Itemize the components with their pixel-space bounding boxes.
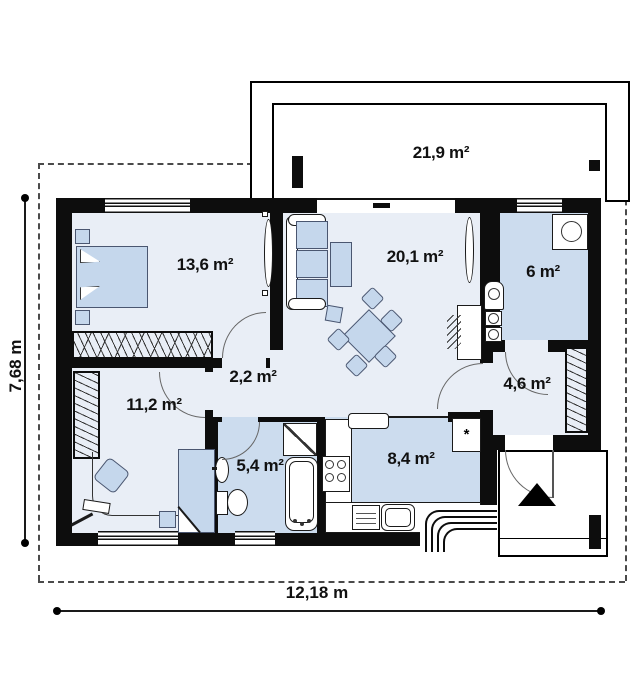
bathroom-window [235, 531, 275, 546]
stool-icon [325, 305, 344, 324]
entrance-hall-area-label: 4,6 m² [503, 374, 550, 394]
sink-tap-icon [212, 467, 217, 470]
door-hinge-icon [262, 211, 268, 217]
burner-icon [337, 460, 346, 469]
burner-icon [325, 473, 334, 482]
burner-icon [337, 473, 346, 482]
hallway-area-label: 2,2 m² [229, 367, 276, 387]
terrace-door-leaf-icon [465, 217, 474, 283]
meter-dial-icon [488, 329, 499, 340]
dimension-endpoint [53, 607, 61, 615]
entrance-arrow-icon [518, 483, 556, 506]
width-dimension-line [57, 610, 601, 612]
terrace-door-sill [373, 203, 390, 208]
washing-machine-drum-icon [561, 221, 582, 242]
bedroom-2-wardrobe-icon [73, 371, 100, 459]
step-line-icon [443, 528, 497, 552]
dimension-endpoint [21, 539, 29, 547]
kitchen-sink-inner [385, 508, 411, 527]
bedroom-2-window [98, 531, 178, 546]
shower-icon [283, 423, 317, 456]
radiator-icon [447, 315, 461, 349]
burner-icon [325, 460, 334, 469]
bedroom-2-door-opening [205, 372, 213, 410]
door-hinge-icon [262, 290, 268, 296]
boiler-dial-icon [488, 288, 500, 300]
utility-room-area-label: 6 m² [526, 262, 560, 282]
bathtub-inner [289, 461, 314, 523]
tv-bench-icon [330, 242, 352, 287]
bedroom-area-label: 13,6 m² [177, 255, 234, 275]
sofa-cushion-icon [296, 250, 328, 278]
bathroom-area-label: 5,4 m² [236, 456, 283, 476]
sofa-armrest-icon [288, 298, 326, 310]
stool-icon [159, 511, 176, 528]
dimension-endpoint [21, 194, 29, 202]
fridge-star-symbol: * [464, 426, 470, 443]
floor-plan-canvas: * 21,9 m² 13,6 m² 20,1 m² 6 m² 2,2 m² 11… [0, 0, 640, 674]
nightstand-icon [75, 229, 90, 244]
kitchen-counter-top [348, 413, 389, 429]
entrance-hall-wardrobe-icon [565, 347, 588, 433]
roof-outline-right [625, 140, 627, 581]
nightstand-icon [75, 310, 90, 325]
utility-door-opening [505, 340, 548, 352]
porch-door-opening [505, 435, 553, 450]
utility-window [517, 198, 562, 213]
kitchen-area-label: 8,4 m² [387, 449, 434, 469]
terrace-area-label: 21,9 m² [413, 143, 470, 163]
sofa-cushion-icon [296, 221, 328, 249]
living-room-area-label: 20,1 m² [387, 247, 444, 267]
roof-outline-left [38, 163, 40, 581]
height-dimension-label: 7,68 m [6, 340, 26, 393]
sink-icon [215, 457, 229, 483]
roof-outline-top-left [38, 163, 253, 165]
porch-pillar-icon [589, 515, 601, 549]
bathtub-drain-icon [293, 519, 297, 523]
fridge-icon: * [452, 418, 481, 452]
bedroom-window [105, 198, 190, 213]
door-leaf-icon [264, 219, 273, 287]
bedroom-2-area-label: 11,2 m² [126, 395, 182, 415]
dimension-endpoint [597, 607, 605, 615]
bedroom-wardrobe-icon [72, 331, 213, 359]
terrace-pillar-small-icon [589, 160, 600, 171]
meter-dial-icon [488, 313, 499, 324]
terrace-pillar-icon [292, 156, 303, 188]
drainer-lines [356, 509, 376, 526]
width-dimension-label: 12,18 m [286, 583, 348, 603]
toilet-bowl-icon [227, 489, 248, 516]
